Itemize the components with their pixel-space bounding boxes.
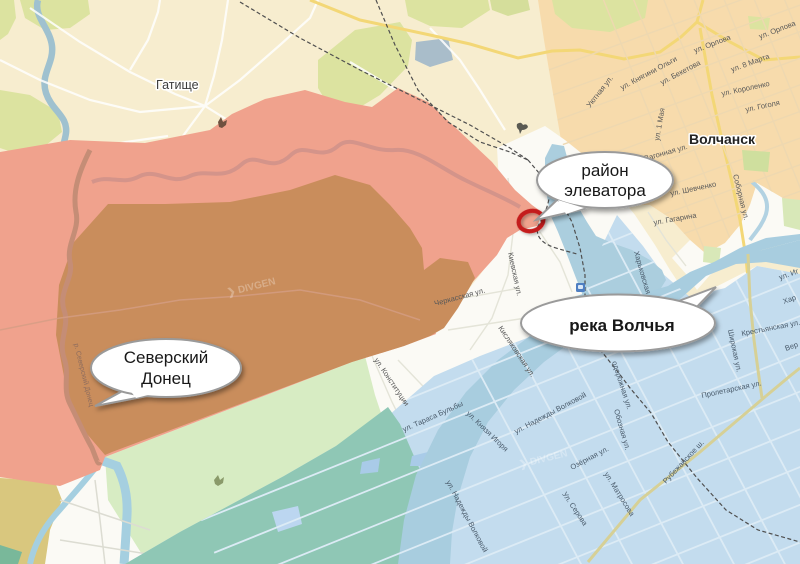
- svg-text:район: район: [581, 161, 628, 180]
- svg-text:Гатище: Гатище: [156, 78, 199, 92]
- svg-text:Волчанск: Волчанск: [689, 131, 756, 147]
- svg-text:река Волчья: река Волчья: [569, 316, 674, 335]
- svg-text:Донец: Донец: [141, 369, 191, 388]
- svg-text:Северский: Северский: [124, 348, 208, 367]
- svg-text:элеватора: элеватора: [564, 181, 646, 200]
